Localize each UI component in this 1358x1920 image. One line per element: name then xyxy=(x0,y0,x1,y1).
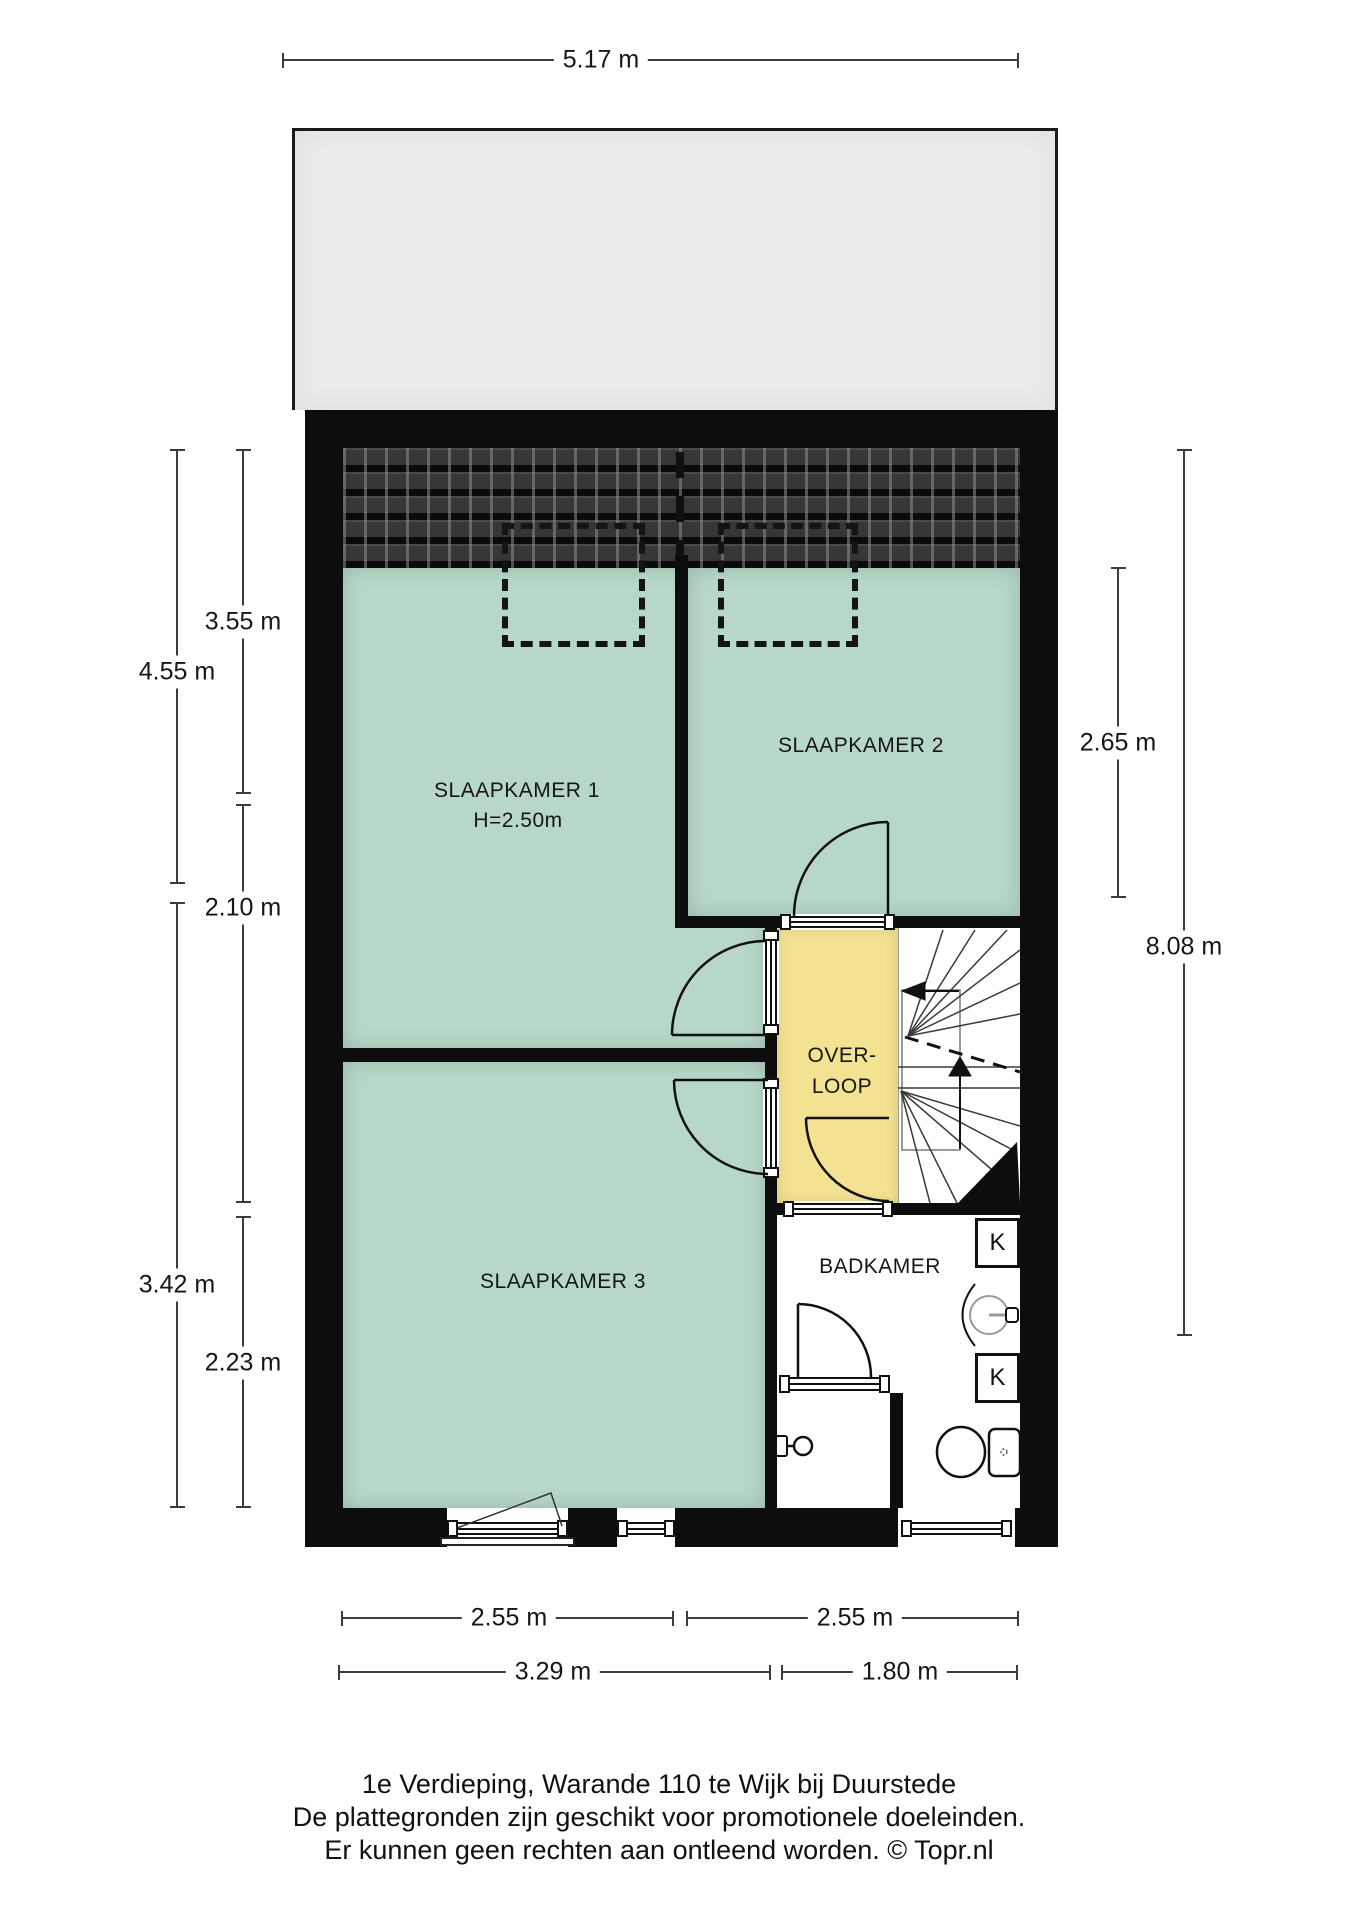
dim-left-inner-upper-label: 3.55 m xyxy=(196,606,290,639)
closet-top-label: K xyxy=(989,1229,1005,1257)
dim-bottom-row2-right: 1.80 m xyxy=(782,1671,1017,1673)
dim-left-outer-lower: 3.42 m xyxy=(176,903,178,1507)
door-frame-slaapkamer2 xyxy=(780,914,895,930)
label-overloop-line1: OVER- xyxy=(807,1040,876,1071)
caption-line2: De plattegronden zijn geschikt voor prom… xyxy=(0,1801,1318,1834)
outer-wall-right xyxy=(1020,410,1058,1547)
dim-top: 5.17 m xyxy=(283,59,1018,61)
dim-left-outer-upper-label: 4.55 m xyxy=(130,656,224,689)
shower-room xyxy=(777,1393,890,1508)
door-frame-slaapkamer3 xyxy=(763,1078,779,1178)
dim-left-inner-middle-label: 2.10 m xyxy=(196,892,290,925)
label-overloop: OVER- LOOP xyxy=(807,1040,876,1102)
dim-right-inner: 2.65 m xyxy=(1117,568,1119,897)
wall-slaapkamer1-3 xyxy=(343,1048,765,1062)
wall-douche-right xyxy=(890,1393,903,1508)
stairwell xyxy=(898,928,1020,1203)
dim-right-inner-label: 2.65 m xyxy=(1071,727,1165,760)
dim-left-inner-middle: 2.10 m xyxy=(242,805,244,1202)
dim-top-label: 5.17 m xyxy=(554,44,648,77)
dim-left-outer-lower-label: 3.42 m xyxy=(130,1269,224,1302)
dim-left-outer-upper: 4.55 m xyxy=(176,450,178,883)
caption-line1: 1e Verdieping, Warande 110 te Wijk bij D… xyxy=(0,1768,1318,1801)
label-badkamer: BADKAMER xyxy=(819,1255,941,1279)
window-right xyxy=(901,1520,1012,1537)
closet-bottom: K xyxy=(975,1353,1020,1403)
label-slaapkamer2: SLAAPKAMER 2 xyxy=(778,734,944,758)
dormer-outline-left xyxy=(502,523,645,647)
dim-left-inner-lower: 2.23 m xyxy=(242,1217,244,1507)
window-left xyxy=(447,1520,568,1537)
dim-left-inner-lower-label: 2.23 m xyxy=(196,1347,290,1380)
dim-right-outer: 8.08 m xyxy=(1183,450,1185,1335)
outer-wall-left xyxy=(305,410,343,1547)
label-overloop-line2: LOOP xyxy=(807,1071,876,1102)
window-left-sill xyxy=(440,1537,575,1546)
caption: 1e Verdieping, Warande 110 te Wijk bij D… xyxy=(0,1768,1318,1867)
dim-left-inner-upper: 3.55 m xyxy=(242,450,244,793)
roof-ridge-dashed-line xyxy=(676,452,684,560)
door-frame-badkamer xyxy=(783,1201,893,1217)
floorplan-canvas: K K SLAAPKAMER 1 H=2.50m SLAAPKAMER 2 SL… xyxy=(0,0,1358,1920)
label-slaapkamer1-height: H=2.50m xyxy=(473,809,562,833)
closet-top: K xyxy=(975,1218,1020,1268)
label-slaapkamer1: SLAAPKAMER 1 xyxy=(434,779,600,803)
dim-bottom-row2-right-label: 1.80 m xyxy=(853,1656,947,1689)
dim-right-outer-label: 8.08 m xyxy=(1137,931,1231,964)
caption-line3: Er kunnen geen rechten aan ontleend word… xyxy=(0,1834,1318,1867)
window-mid xyxy=(617,1520,675,1537)
label-slaapkamer3: SLAAPKAMER 3 xyxy=(480,1270,646,1294)
outer-wall-top xyxy=(305,410,1058,448)
dim-bottom-row2-left-label: 3.29 m xyxy=(506,1656,600,1689)
closet-bottom-label: K xyxy=(989,1364,1005,1392)
flat-roof-area xyxy=(292,128,1058,410)
wall-slaapkamer1-2 xyxy=(675,555,688,928)
dim-bottom-row1-right-label: 2.55 m xyxy=(808,1602,902,1635)
dim-bottom-row1-left: 2.55 m xyxy=(342,1617,673,1619)
dormer-outline-right xyxy=(718,523,858,647)
wall-douche-left xyxy=(765,1393,777,1508)
dim-bottom-row1-right: 2.55 m xyxy=(687,1617,1018,1619)
door-frame-shower xyxy=(779,1375,890,1393)
dim-bottom-row1-left-label: 2.55 m xyxy=(462,1602,556,1635)
door-frame-slaapkamer1 xyxy=(763,930,779,1035)
dim-bottom-row2-left: 3.29 m xyxy=(339,1671,770,1673)
